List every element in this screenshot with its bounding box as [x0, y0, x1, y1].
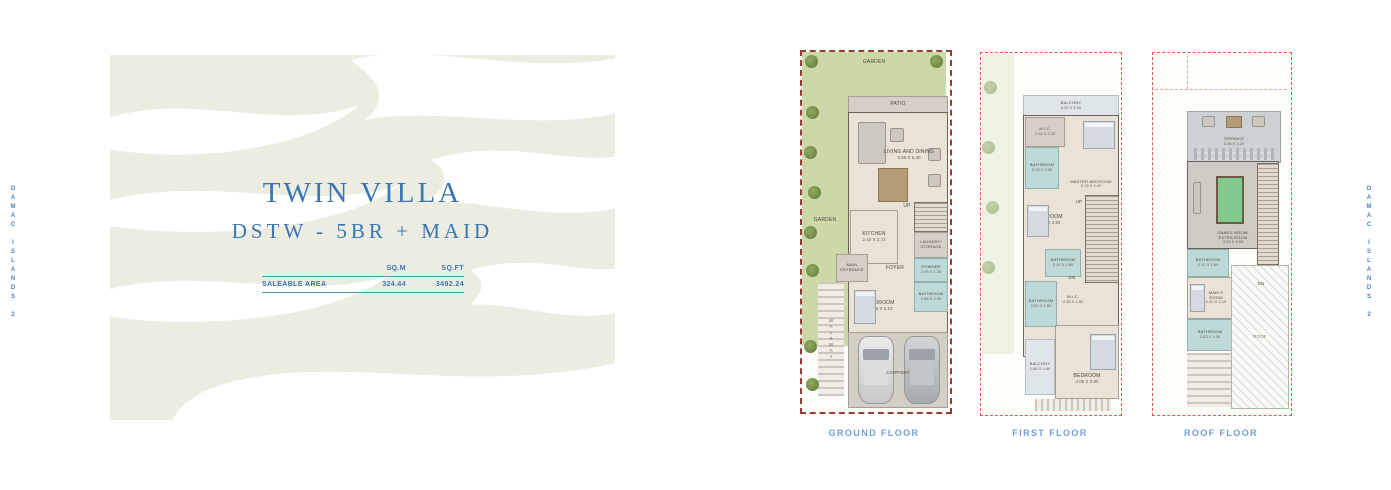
tree-icon [804, 146, 817, 159]
room-label: UP [1076, 199, 1083, 204]
tree-icon [804, 340, 817, 353]
roof-floor-plan: TERRACE 5.98 X 3.29 GAMES ROOM/ EXTRA RO… [1152, 52, 1292, 416]
area-table: SQ.M SQ.FT SALEABLE AREA 324.44 3492.24 [262, 261, 464, 293]
wic-master: W.I.C. 2.05 X 2.40 [1025, 117, 1065, 147]
bedroom-2: BEDROOM 3.50 X 3.84 [1025, 193, 1073, 247]
bed [1090, 334, 1116, 370]
room-label: WALKWAY [828, 318, 833, 360]
row-sqm-value: 324.44 [354, 281, 406, 288]
walkway: WALKWAY [818, 282, 844, 396]
tree-icon [805, 55, 818, 68]
bed [854, 290, 876, 324]
laundry-storage: LAUNDRY/ STORAGE [914, 232, 948, 258]
room-label: DN [1258, 281, 1265, 286]
tree-icon [982, 261, 995, 274]
room-label: DN [1069, 275, 1076, 280]
dining-table [878, 168, 908, 202]
room-dims: 1.98 X 2.59 [921, 297, 941, 302]
bathroom-3: BATHROOM 2.50 X 1.60 [1025, 281, 1057, 327]
room-dims: 2.10 X 1.60 [1198, 263, 1218, 268]
room-dims: 5.89 X 6.30 [897, 155, 920, 160]
area-table-header-row: SQ.M SQ.FT [262, 261, 464, 276]
room-dims: 1.66 X 4.80 [1030, 367, 1050, 372]
pergola-grid [1194, 148, 1274, 160]
page-subtitle: DSTW - 5BR + MAID [110, 219, 615, 244]
first-floor-caption: FIRST FLOOR [980, 428, 1120, 438]
room-dims: 4.38 X 1.80 [1063, 300, 1083, 305]
balcony: BALCONY 5.30 X 1.26 [1023, 95, 1119, 117]
tree-icon [808, 186, 821, 199]
plot-divider-line [1155, 89, 1287, 90]
main-entrance: MAIN ENTRANCE [836, 254, 868, 282]
room-label: LAUNDRY/ STORAGE [915, 240, 947, 249]
row-label: SALEABLE AREA [262, 281, 354, 288]
maids-room: MAID'S ROOM 2.50 X 2.15 [1187, 277, 1233, 319]
tree-icon [930, 55, 943, 68]
bedroom-3: BEDROOM 4.05 X 3.90 [1055, 325, 1119, 399]
staircase [1085, 195, 1119, 283]
carport-label: CARPORT [878, 368, 918, 378]
tree-icon [806, 106, 819, 119]
table-divider [262, 292, 464, 293]
living-dining-room: LIVING AND DINING 5.89 X 6.30 [876, 144, 942, 166]
room-dims: 2.15 X 2.85 [1032, 168, 1052, 173]
coffee-table [890, 128, 904, 142]
page-title: TWIN VILLA [110, 177, 615, 210]
room-label: GARDEN [863, 60, 886, 66]
bed [1027, 205, 1049, 237]
room-dims: 4.93 X 4.63 [1223, 240, 1243, 245]
terrace-chair [1252, 116, 1265, 127]
room-dims: 4.05 X 3.90 [1075, 379, 1098, 384]
header-sqft: SQ.FT [406, 265, 464, 272]
room-label: FOYER [886, 266, 904, 272]
roof-floor-caption: ROOF FLOOR [1152, 428, 1290, 438]
powder-room: POWDER 2.05 X 1.35 [914, 258, 948, 282]
stairs-dn-label: DN [1251, 279, 1271, 289]
bedroom: BEDROOM 3.95 X 3.10 [850, 282, 912, 330]
room-dims: 5.98 X 3.29 [1224, 142, 1244, 147]
area-table-row: SALEABLE AREA 324.44 3492.24 [262, 277, 464, 292]
room-label: PATIO [890, 102, 905, 108]
pool-table [1216, 176, 1244, 224]
room-label: UP [903, 204, 910, 210]
tree-icon [986, 201, 999, 214]
room-dims: 2.05 X 2.40 [1035, 132, 1055, 137]
title-block: TWIN VILLA DSTW - 5BR + MAID [110, 177, 615, 244]
bathroom: BATHROOM 1.98 X 2.59 [914, 282, 948, 312]
bathroom-4: BATHROOM 2.10 X 1.60 [1187, 249, 1229, 277]
room-label: MAIN ENTRANCE [837, 263, 867, 272]
master-bathroom: BATHROOM 2.15 X 2.85 [1025, 147, 1059, 189]
tree-icon [806, 264, 819, 277]
header-sqm: SQ.M [354, 265, 406, 272]
staircase-down [1257, 163, 1279, 265]
terrace: TERRACE 5.98 X 3.29 [1187, 111, 1281, 163]
room-dims: 2.05 X 1.35 [921, 270, 941, 275]
master-bedroom: MASTER BEDROOM 5.15 X 4.40 [1065, 117, 1117, 193]
tree-icon [984, 81, 997, 94]
title-panel: TWIN VILLA DSTW - 5BR + MAID SQ.M SQ.FT … [110, 55, 615, 420]
stairs-up-label: UP [1073, 197, 1085, 207]
staircase-up [914, 202, 948, 232]
tree-icon [804, 226, 817, 239]
room-dims: 5.30 X 1.26 [1061, 106, 1081, 111]
ground-floor-plan: GARDEN GARDEN PATIO LIVING AND DINING 5.… [800, 50, 952, 414]
armchair [928, 174, 941, 187]
plot-divider-line [1187, 55, 1188, 89]
room-dims: 2.50 X 1.60 [1031, 304, 1051, 309]
stairs-up-label: UP [900, 202, 914, 212]
terrace-table [1226, 116, 1242, 128]
tree-icon [982, 141, 995, 154]
brand-vertical-text-left: DAMAC ISLANDS 2 [10, 186, 16, 321]
bottom-walkway [1035, 399, 1111, 411]
room-label: CARPORT [886, 370, 909, 375]
room-dims: 2.10 X 1.80 [1053, 263, 1073, 268]
bathroom-5: BATHROOM 2.63 X 1.30 [1187, 319, 1233, 351]
room-dims: 2.40 X 3.73 [862, 237, 885, 242]
bench [1193, 182, 1201, 214]
room-label: GARDEN [814, 218, 837, 224]
room-dims: 2.63 X 1.30 [1200, 335, 1220, 340]
louver-deck [1187, 353, 1231, 407]
bed [1190, 284, 1205, 312]
tree-icon [806, 378, 819, 391]
foyer: FOYER [878, 262, 912, 276]
room-dims: 2.50 X 2.15 [1206, 300, 1226, 305]
balcony-side: BALCONY 1.66 X 4.80 [1025, 339, 1055, 395]
room-label: ROOF [1253, 334, 1267, 339]
brand-vertical-text-right: DAMAC ISLANDS 2 [1366, 186, 1372, 321]
terrace-chair [1202, 116, 1215, 127]
row-sqft-value: 3492.24 [406, 281, 464, 288]
bed [1083, 121, 1115, 149]
room-dims: 5.15 X 4.40 [1081, 184, 1101, 189]
stairs-dn-label: DN [1057, 273, 1087, 283]
ground-floor-caption: GROUND FLOOR [800, 428, 948, 438]
first-floor-plan: BALCONY 5.30 X 1.26 W.I.C. 2.05 X 2.40 M… [980, 52, 1122, 416]
